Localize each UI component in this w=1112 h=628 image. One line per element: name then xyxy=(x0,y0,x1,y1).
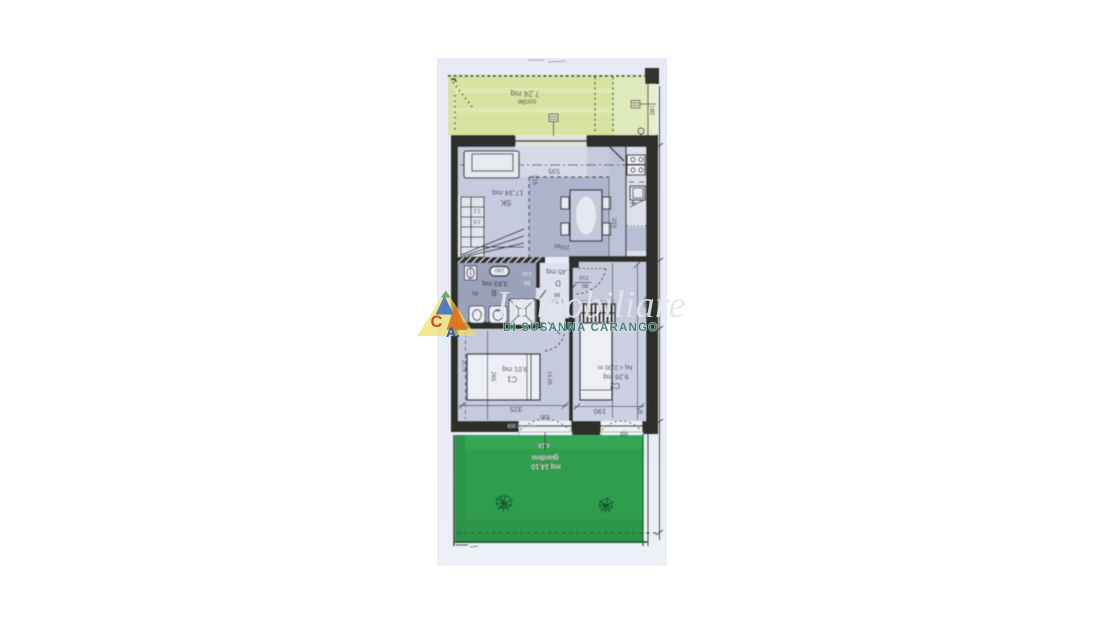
svg-text:215: 215 xyxy=(560,244,569,250)
svg-text:2.2: 2.2 xyxy=(473,207,480,213)
svg-text:210: 210 xyxy=(522,270,531,276)
svg-text:14,05: 14,05 xyxy=(546,371,552,385)
svg-text:giardino: giardino xyxy=(532,454,559,463)
svg-text:930: 930 xyxy=(540,413,549,419)
svg-text:A05 T02 309: A05 T02 309 xyxy=(508,422,537,428)
svg-text:C1: C1 xyxy=(506,375,517,384)
svg-text:535: 535 xyxy=(548,167,560,174)
svg-text:C2: C2 xyxy=(609,381,620,390)
svg-text:17,34 mq: 17,34 mq xyxy=(492,189,523,198)
svg-text:C: C xyxy=(431,313,443,331)
svg-text:2.6: 2.6 xyxy=(473,218,480,224)
svg-text:60: 60 xyxy=(637,408,643,414)
svg-text:14: 14 xyxy=(649,401,655,407)
svg-text:mq 14,10: mq 14,10 xyxy=(531,463,560,470)
svg-text:180: 180 xyxy=(648,105,654,116)
svg-text:9,26 mq: 9,26 mq xyxy=(603,373,628,380)
svg-text:315: 315 xyxy=(610,218,617,229)
svg-text:cortile: cortile xyxy=(518,98,537,105)
svg-text:hq = 2,00 m: hq = 2,00 m xyxy=(598,364,633,371)
svg-text:210: 210 xyxy=(579,274,588,280)
svg-text:80: 80 xyxy=(554,242,560,248)
svg-text:265: 265 xyxy=(490,371,496,382)
svg-text:Immobiliare: Immobiliare xyxy=(495,284,686,326)
svg-text:4,18: 4,18 xyxy=(538,442,550,448)
svg-text:7,24 mq: 7,24 mq xyxy=(511,89,540,98)
svg-text:240: 240 xyxy=(495,267,504,273)
svg-text:85: 85 xyxy=(472,290,478,296)
svg-text:SK: SK xyxy=(500,198,511,207)
svg-text:A.: A. xyxy=(446,324,460,340)
svg-text:190: 190 xyxy=(594,407,607,416)
svg-text:215: 215 xyxy=(531,175,537,186)
svg-text:1,45 mq: 1,45 mq xyxy=(546,268,571,275)
svg-text:9,01 mq: 9,01 mq xyxy=(502,365,527,372)
svg-text:325: 325 xyxy=(510,405,523,414)
svg-text:2,75: 2,75 xyxy=(461,360,467,372)
svg-text:9|8: 9|8 xyxy=(619,430,628,436)
svg-text:DI SUSANNA CARANGO: DI SUSANNA CARANGO xyxy=(503,322,658,334)
